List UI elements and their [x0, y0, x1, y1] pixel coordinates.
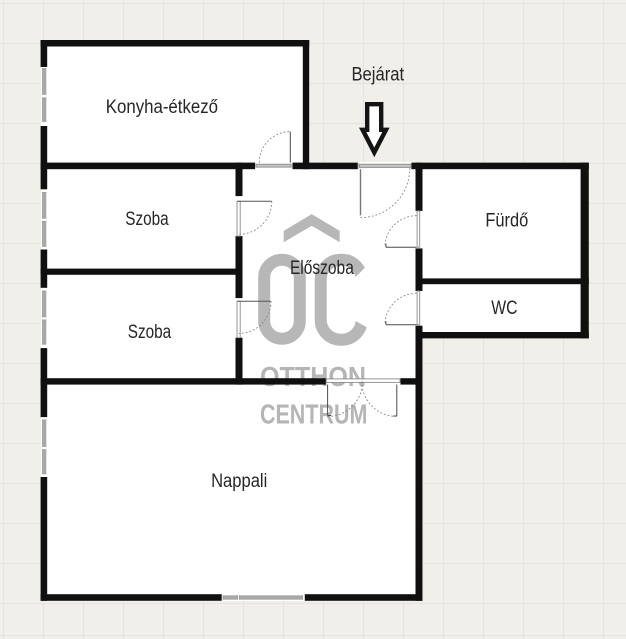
svg-text:Konyha-étkező: Konyha-étkező: [106, 97, 218, 118]
svg-text:Szoba: Szoba: [128, 322, 172, 343]
svg-text:Bejárat: Bejárat: [351, 65, 404, 86]
svg-text:CENTRUM: CENTRUM: [260, 398, 368, 429]
svg-text:Szoba: Szoba: [125, 209, 169, 230]
svg-text:Előszoba: Előszoba: [290, 258, 354, 279]
svg-text:WC: WC: [491, 298, 517, 319]
svg-text:Nappali: Nappali: [211, 471, 267, 492]
svg-text:Fürdő: Fürdő: [485, 210, 528, 231]
svg-text:OTTHON: OTTHON: [260, 361, 366, 392]
